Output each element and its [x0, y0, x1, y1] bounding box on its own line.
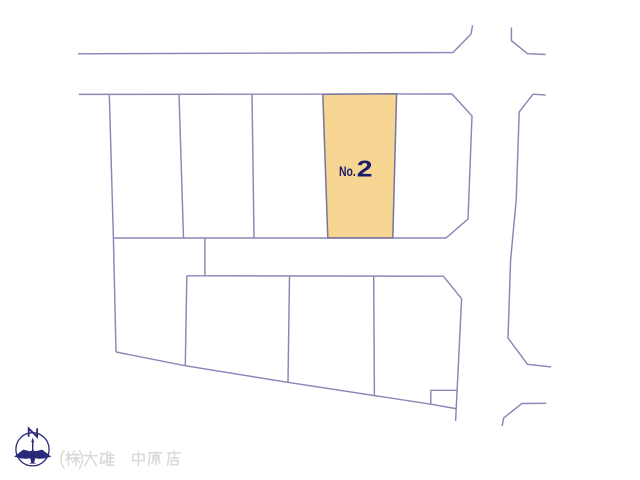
svg-text:2: 2 [357, 155, 373, 181]
svg-text:No.: No. [339, 163, 356, 179]
